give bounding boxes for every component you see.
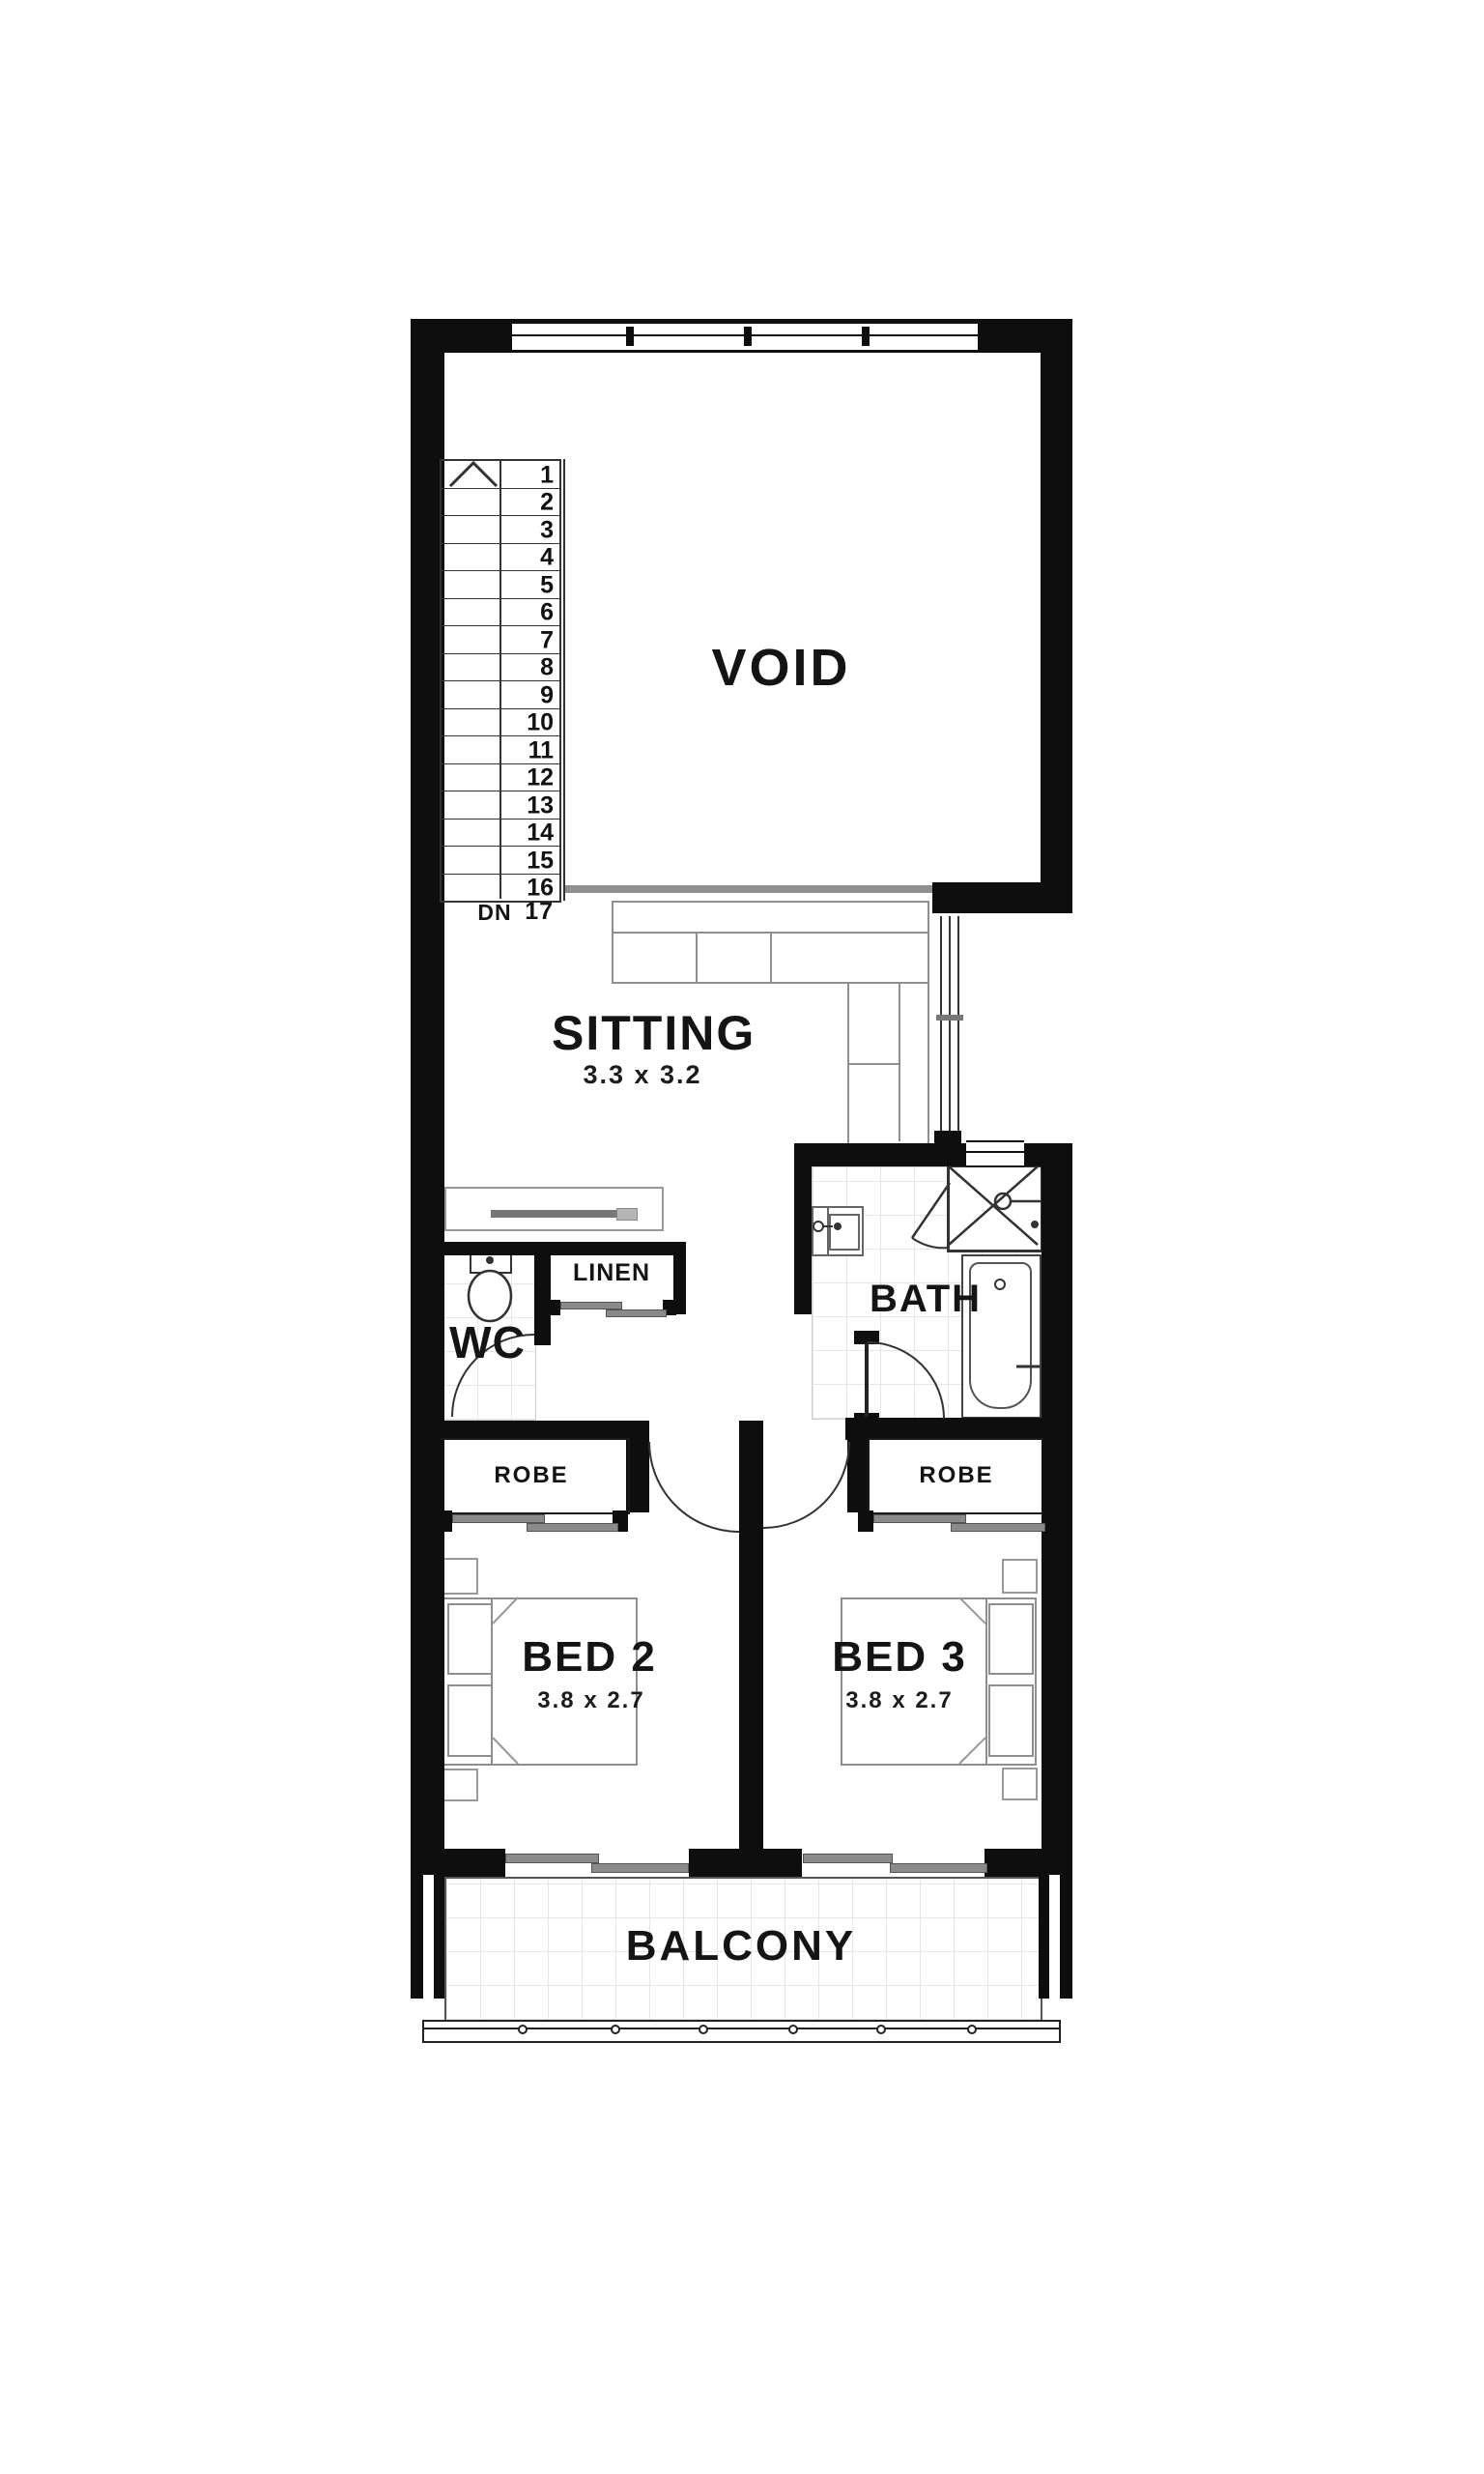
bed2-balcony-slider bbox=[505, 1854, 599, 1863]
stair-step-number: 1 bbox=[540, 461, 554, 489]
robe-right-label: ROBE bbox=[879, 1464, 1034, 1487]
bed2-balcony-slider bbox=[591, 1863, 689, 1873]
bath-label: BATH bbox=[829, 1280, 1022, 1318]
sitting-dims: 3.3 x 3.2 bbox=[546, 1062, 739, 1088]
chaise-cushion-divider bbox=[847, 1063, 899, 1065]
balcony-pier-right-gap bbox=[1049, 1875, 1060, 1999]
wall-right-upper bbox=[1041, 319, 1072, 913]
balcony-railing bbox=[422, 2020, 1061, 2043]
wall-hall-right bbox=[845, 1418, 1072, 1440]
sitting-window-line bbox=[957, 916, 959, 1140]
stair-step-number: 8 bbox=[540, 654, 554, 682]
bed3-mattress-line bbox=[985, 1597, 987, 1764]
stair-step-number: 14 bbox=[527, 820, 554, 848]
chaise-back-line bbox=[899, 982, 900, 1141]
linen-slider-panel bbox=[560, 1302, 622, 1309]
window-bath-line bbox=[966, 1151, 1024, 1153]
bed3-side-table-top bbox=[1002, 1559, 1038, 1594]
stair-step-number: 2 bbox=[540, 489, 554, 517]
bed3-side-table-bottom bbox=[1002, 1768, 1038, 1800]
floor-plan: 1 2 3 4 5 6 7 8 9 10 11 12 13 14 15 16 D… bbox=[0, 0, 1484, 2474]
wall-bath-top bbox=[795, 1143, 1072, 1166]
sofa-cushion-divider bbox=[770, 932, 772, 982]
balcony-label: BALCONY bbox=[596, 1925, 886, 1968]
robe-right-slider-panel bbox=[873, 1514, 966, 1523]
tv-screen bbox=[491, 1210, 616, 1218]
plan-linework bbox=[0, 0, 1484, 2474]
stair-divider bbox=[499, 459, 501, 899]
wc-label: WC bbox=[437, 1320, 538, 1365]
robe-left-slider-block bbox=[437, 1510, 452, 1532]
linen-label: LINEN bbox=[554, 1261, 670, 1285]
stair-step-number: 9 bbox=[540, 681, 554, 709]
window-tick bbox=[862, 327, 870, 346]
stairs-step17-label: 17 bbox=[517, 900, 554, 924]
bed3-label: BED 3 bbox=[803, 1636, 996, 1679]
sitting-window-line bbox=[949, 916, 951, 1140]
bath-door-jamb bbox=[854, 1331, 879, 1344]
void-edge-line bbox=[563, 885, 932, 893]
balcony-wall-center bbox=[689, 1849, 802, 1877]
robe-left-slider-panel bbox=[527, 1523, 618, 1532]
linen-slider-panel bbox=[606, 1309, 667, 1317]
sitting-window-cap bbox=[934, 1131, 961, 1144]
stair-step-number: 6 bbox=[540, 599, 554, 627]
window-tick bbox=[744, 327, 752, 346]
robe-left-slider-panel bbox=[452, 1514, 545, 1523]
balcony-wall-right bbox=[985, 1849, 1072, 1877]
stair-step-number: 4 bbox=[540, 544, 554, 572]
balcony-pier-left-gap bbox=[423, 1875, 434, 1999]
window-bath bbox=[966, 1140, 1024, 1167]
shower-enclosure bbox=[947, 1165, 1043, 1252]
bed2-label: BED 2 bbox=[493, 1636, 686, 1679]
stair-step-number: 5 bbox=[540, 571, 554, 599]
sitting-label: SITTING bbox=[552, 1009, 745, 1057]
bed3-balcony-slider bbox=[803, 1854, 893, 1863]
bed2-side-table-bottom bbox=[442, 1769, 478, 1801]
bed3-balcony-slider bbox=[890, 1863, 987, 1873]
sitting-window-line bbox=[940, 916, 942, 1140]
robe-right-jamb bbox=[847, 1421, 870, 1512]
sitting-window-tick bbox=[936, 1015, 963, 1021]
bed2-pillow-bottom bbox=[447, 1684, 493, 1757]
stair-step-number: 11 bbox=[528, 736, 554, 764]
window-tick bbox=[626, 327, 634, 346]
stair-step-number: 7 bbox=[540, 626, 554, 654]
wall-right-lower bbox=[1042, 1143, 1072, 1875]
vanity-basin bbox=[829, 1214, 860, 1251]
stair-step-number: 3 bbox=[540, 516, 554, 544]
wall-hall-left bbox=[411, 1421, 649, 1440]
linen-slider-block bbox=[547, 1300, 560, 1315]
bed3-door-arc bbox=[763, 1442, 849, 1528]
stair-step-number: 13 bbox=[527, 791, 554, 820]
stair-step-number: 15 bbox=[527, 847, 554, 875]
bed2-side-table-top bbox=[442, 1558, 478, 1595]
wall-void-bottom bbox=[932, 882, 1072, 913]
stair-step-number: 10 bbox=[527, 709, 554, 737]
bed3-dims: 3.8 x 2.7 bbox=[803, 1689, 996, 1712]
bed2-pillow-top bbox=[447, 1603, 493, 1675]
bed2-dims: 3.8 x 2.7 bbox=[495, 1689, 688, 1712]
wall-bath-left bbox=[794, 1143, 812, 1314]
robe-right-slider-block bbox=[858, 1510, 873, 1532]
stair-outer-line bbox=[563, 459, 565, 901]
stair-step-number: 12 bbox=[527, 764, 554, 792]
sofa-cushion-divider bbox=[696, 932, 698, 982]
vanity-divider bbox=[827, 1206, 829, 1254]
stairs-dn-label: DN bbox=[473, 902, 516, 924]
void-label: VOID bbox=[701, 642, 861, 694]
bed2-door-arc bbox=[649, 1442, 739, 1532]
bed2-mattress-line bbox=[491, 1597, 493, 1764]
robe-right-slider-panel bbox=[951, 1523, 1045, 1532]
tv-bracket bbox=[616, 1208, 638, 1221]
balcony-wall-left bbox=[411, 1849, 505, 1877]
robe-left-label: ROBE bbox=[454, 1464, 609, 1487]
balcony-railing-line bbox=[424, 2028, 1059, 2029]
wall-central bbox=[739, 1421, 763, 1875]
